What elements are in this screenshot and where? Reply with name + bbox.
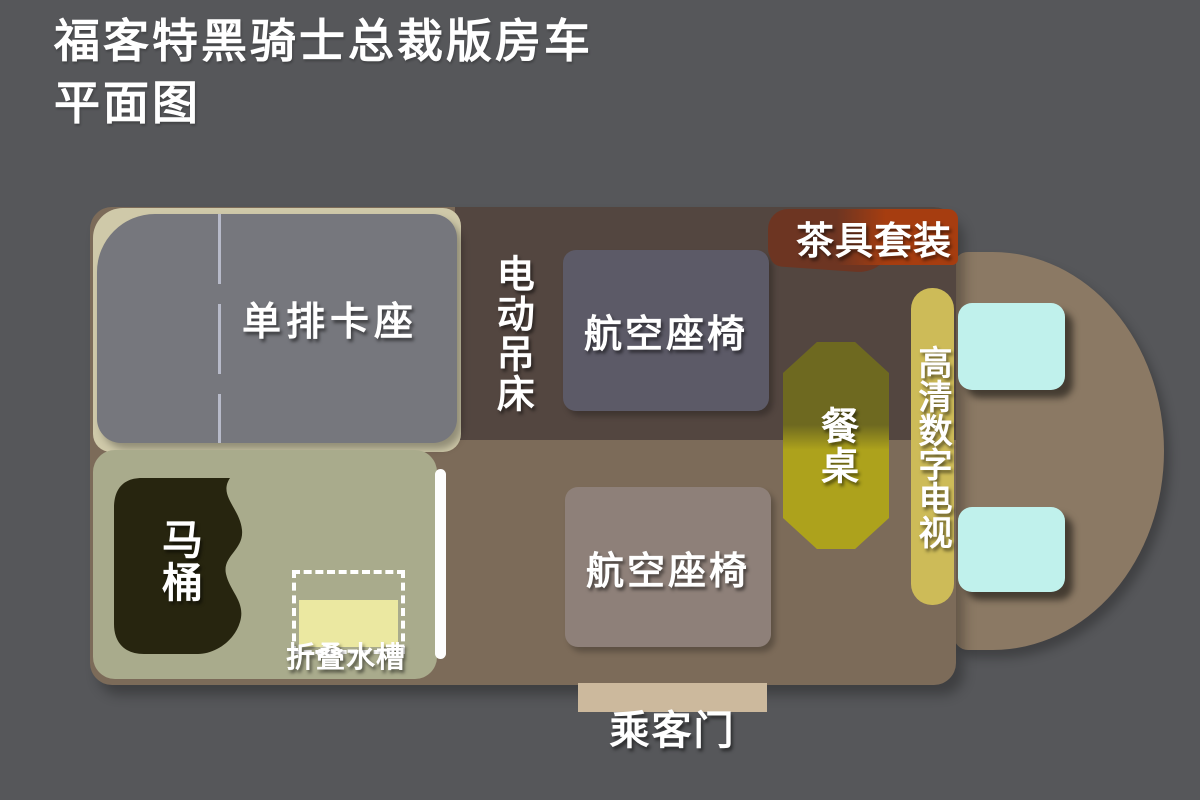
dining-table: 餐桌 — [783, 342, 889, 549]
cab-seat-driver — [958, 303, 1065, 390]
folding-sink-label: 折叠水槽 — [286, 643, 406, 674]
aviation-seat-top: 航空座椅 — [563, 250, 769, 411]
passenger-door-label: 乘客门 — [578, 710, 767, 752]
hd-tv: 高清数字电视 — [911, 288, 954, 605]
folding-sink-basin — [299, 600, 398, 647]
page-title-line2: 平面图 — [54, 72, 593, 134]
aviation-seat-bottom: 航空座椅 — [565, 487, 771, 647]
passenger-door-shape — [578, 683, 767, 712]
dining-table-label: 餐桌 — [809, 406, 864, 486]
cab-seat-passenger — [958, 507, 1065, 592]
page-title-line1: 福客特黑骑士总裁版房车 — [54, 10, 593, 72]
booth-label: 单排卡座 — [242, 302, 418, 343]
page-title: 福客特黑骑士总裁版房车 平面图 — [54, 10, 593, 134]
booth-divider-line — [218, 214, 221, 443]
bathroom-wall-bar — [435, 469, 446, 659]
tea-set-label: 茶具套装 — [796, 210, 958, 265]
tea-set-zone: 茶具套装 — [768, 209, 958, 265]
hd-tv-label: 高清数字电视 — [908, 345, 957, 549]
toilet-label: 马桶 — [156, 518, 199, 604]
aviation-seat-bottom-label: 航空座椅 — [586, 540, 750, 595]
electric-bed-label: 电动吊床 — [491, 254, 531, 414]
rv-floorplan-page: 福客特黑骑士总裁版房车 平面图 单排卡座 电动吊床 航空座椅 茶具套装 餐桌 高… — [0, 0, 1200, 800]
aviation-seat-top-label: 航空座椅 — [584, 303, 748, 358]
